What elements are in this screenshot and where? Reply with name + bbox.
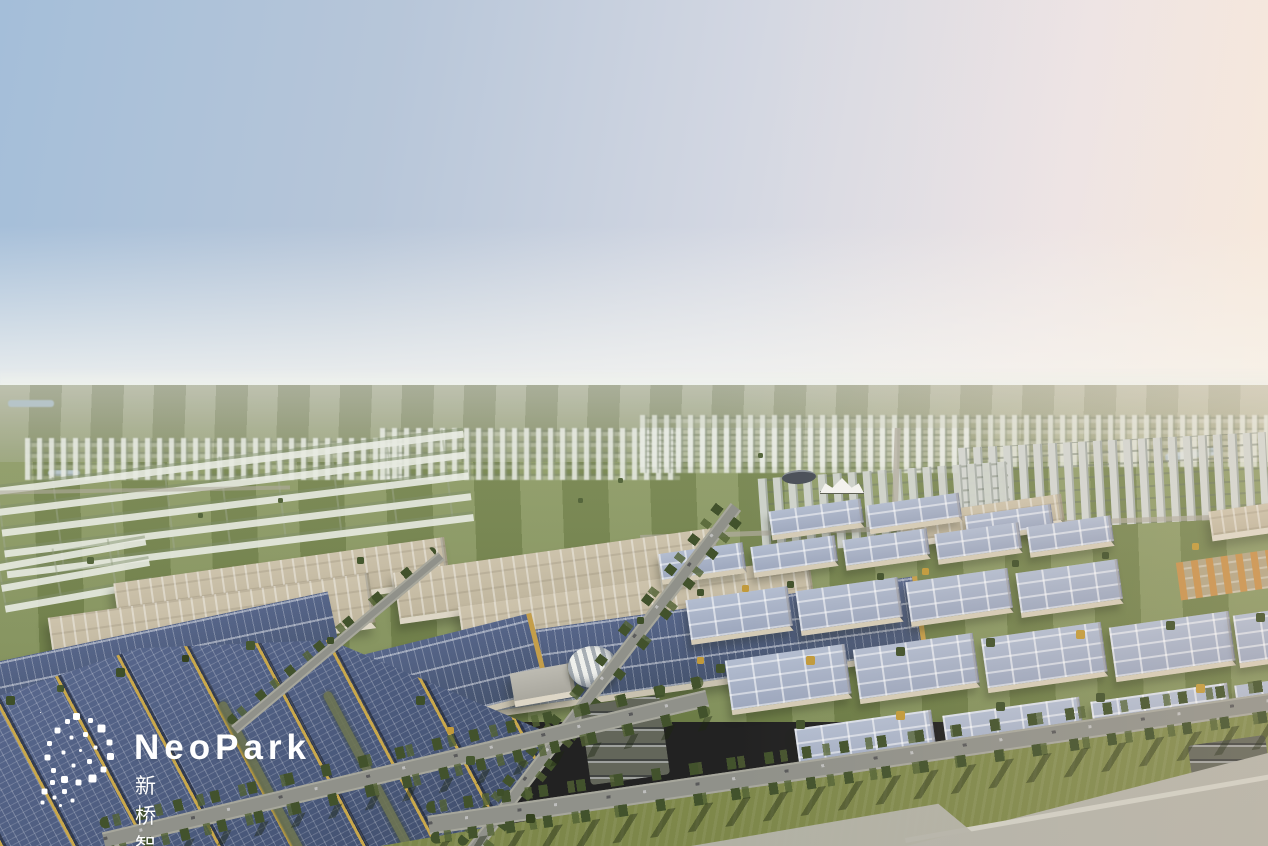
pond: [8, 400, 54, 407]
dotted-swirl-logo-icon: [40, 712, 41, 713]
logo-subtitle-text: 新桥智能电动汽车产业园: [135, 770, 160, 846]
sky: [0, 0, 1268, 410]
neopark-aerial-render: NeoPark 新桥智能电动汽车产业园: [0, 0, 1268, 846]
logo-brand-text: NeoPark: [134, 728, 311, 768]
low-rise-district: [640, 428, 970, 473]
neopark-logo: NeoPark 新桥智能电动汽车产业园: [0, 0, 1, 1]
